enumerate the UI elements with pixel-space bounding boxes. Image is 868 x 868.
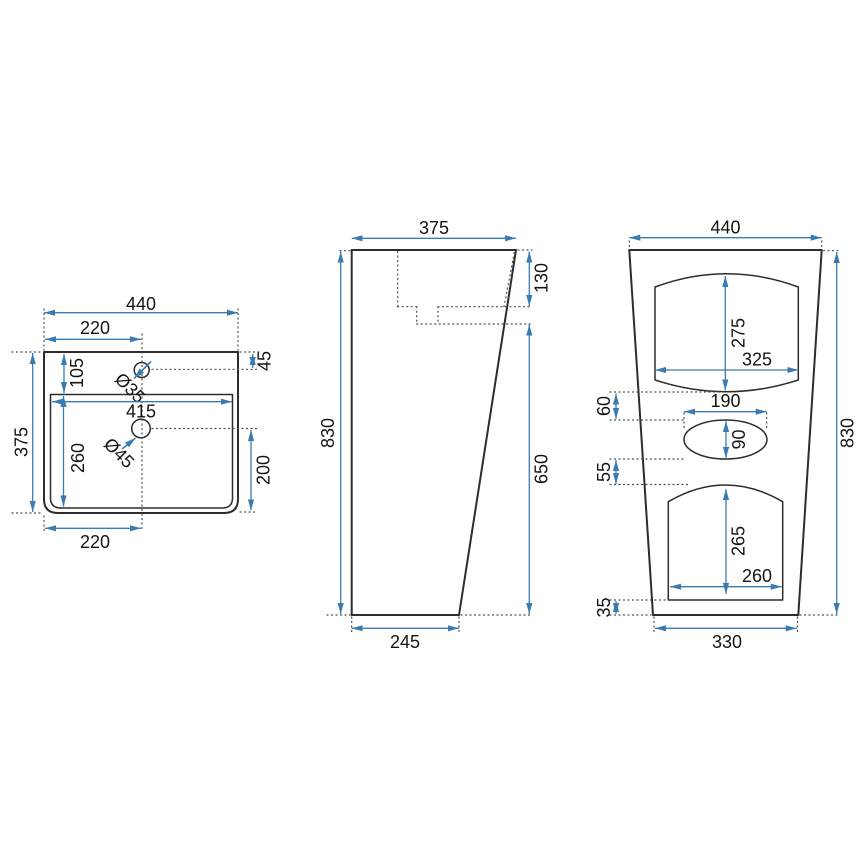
pedestal-side-contour xyxy=(352,250,516,615)
dim-label-rim-to-faucet: 45 xyxy=(255,351,275,371)
dim-label-drain-to-front: 200 xyxy=(254,455,274,485)
dim-label-basin-width: 415 xyxy=(126,402,156,422)
front-view: 440 830 275 325 60 190 90 55 265 260 35 … xyxy=(594,218,858,653)
dim-label-overall-height: 830 xyxy=(838,418,858,448)
dim-label-left-to-center-bottom: 220 xyxy=(80,532,110,552)
dim-label-lower-height: 650 xyxy=(532,454,552,484)
dim-label-overall-depth: 375 xyxy=(12,427,32,457)
dim-label-left-to-center-top: 220 xyxy=(80,318,110,338)
dim-label-overflow-height: 90 xyxy=(729,429,749,449)
dim-label-overall-width: 440 xyxy=(126,294,156,314)
dim-label-basin-depth: 130 xyxy=(532,263,552,293)
upper-recess-contour xyxy=(655,274,798,392)
dim-label-overflow-to-opening: 55 xyxy=(594,462,614,482)
dim-label-opening-height: 265 xyxy=(729,526,749,556)
dim-label-overflow-width: 190 xyxy=(710,391,740,411)
side-view: 375 830 130 650 245 xyxy=(318,218,552,652)
dim-label-bottom-depth: 245 xyxy=(390,632,420,652)
dim-label-top-depth: 375 xyxy=(419,218,449,238)
dim-label-opening-to-floor: 35 xyxy=(594,597,614,617)
dim-label-top-width: 440 xyxy=(710,218,740,238)
dim-label-bottom-width: 330 xyxy=(712,632,742,652)
dim-label-recess-to-overflow: 60 xyxy=(594,396,614,416)
dim-label-opening-width: 260 xyxy=(742,566,772,586)
dim-label-basin-front-depth: 260 xyxy=(68,443,88,473)
technical-drawing-canvas: 440 220 105 45 Ø35 415 Ø45 260 200 220 3… xyxy=(0,0,868,868)
dim-label-overall-height: 830 xyxy=(318,418,338,448)
top-view: 440 220 105 45 Ø35 415 Ø45 260 200 220 3… xyxy=(12,294,275,552)
dim-label-recess-width: 325 xyxy=(742,350,772,370)
dim-label-rim-to-basin: 105 xyxy=(67,358,87,388)
dim-label-recess-height: 275 xyxy=(729,318,749,348)
drain-hole xyxy=(132,419,151,438)
